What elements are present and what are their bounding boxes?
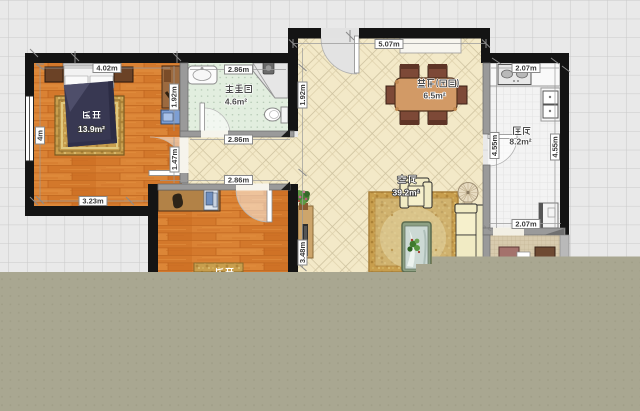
svg-text:8.2m²: 8.2m² <box>509 137 531 147</box>
svg-text:1.92m: 1.92m <box>170 86 179 108</box>
svg-text:2.86m: 2.86m <box>228 176 250 185</box>
svg-text:1.47m: 1.47m <box>170 149 179 171</box>
svg-text:13.9m²: 13.9m² <box>78 124 105 134</box>
svg-text:2.07m: 2.07m <box>515 64 537 73</box>
svg-text:39.2m²: 39.2m² <box>393 188 420 198</box>
svg-text:1.92m: 1.92m <box>298 84 307 106</box>
svg-text:5.07m: 5.07m <box>378 40 400 49</box>
svg-text:4.6m²: 4.6m² <box>225 97 247 107</box>
svg-text:2.86m: 2.86m <box>228 65 250 74</box>
svg-text:6.5m²: 6.5m² <box>423 91 445 101</box>
svg-text:4.02m: 4.02m <box>96 64 118 73</box>
svg-text:3.23m: 3.23m <box>82 197 104 206</box>
svg-text:2.86m: 2.86m <box>228 135 250 144</box>
svg-text:3.48m: 3.48m <box>298 242 307 264</box>
svg-text:2.07m: 2.07m <box>515 220 537 229</box>
svg-text:4m: 4m <box>36 130 45 141</box>
svg-text:4.55m: 4.55m <box>551 136 560 158</box>
svg-text:4.55m: 4.55m <box>490 135 499 157</box>
